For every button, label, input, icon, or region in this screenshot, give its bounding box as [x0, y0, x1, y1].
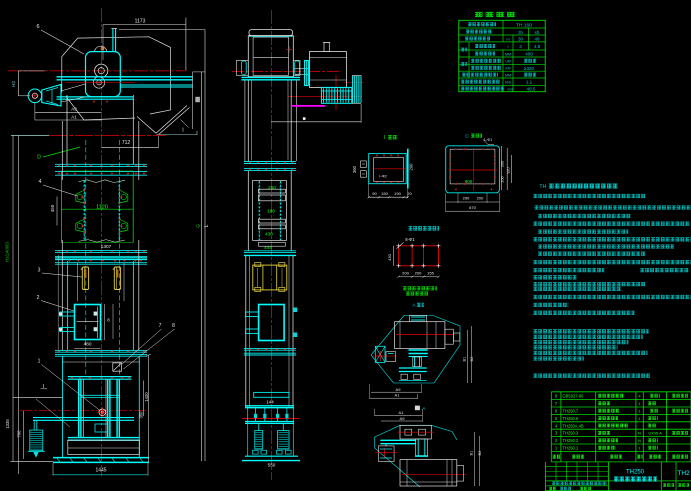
svg-text:1.1: 1.1	[526, 80, 533, 85]
svg-text:200: 200	[501, 176, 505, 182]
svg-text:90: 90	[372, 191, 377, 196]
svg-text:TH 160: TH 160	[516, 23, 532, 29]
svg-text:150: 150	[381, 191, 388, 196]
svg-text:B2: B2	[470, 357, 474, 362]
svg-text:L: L	[204, 224, 210, 227]
svg-text:360: 360	[352, 165, 357, 173]
svg-text:1307: 1307	[101, 244, 112, 250]
svg-text:180: 180	[267, 209, 275, 214]
svg-text:TH250.7: TH250.7	[563, 409, 579, 414]
svg-text:B1: B1	[463, 357, 467, 362]
svg-text:A9: A9	[396, 387, 402, 392]
svg-text:I-Φ2: I-Φ2	[379, 175, 386, 179]
svg-text:350: 350	[139, 411, 144, 419]
svg-text:400: 400	[525, 52, 533, 57]
svg-text:1173: 1173	[135, 19, 146, 25]
svg-text:UM: UM	[505, 60, 511, 64]
svg-text:1445: 1445	[95, 468, 106, 474]
svg-text:r/mi: r/mi	[507, 87, 513, 91]
svg-text:1: 1	[38, 359, 41, 365]
svg-text:6: 6	[36, 24, 39, 30]
svg-text:A: A	[413, 303, 416, 308]
svg-text:2: 2	[37, 295, 40, 301]
svg-text:550: 550	[268, 463, 276, 468]
svg-text:GX35-A: GX35-A	[648, 432, 662, 436]
svg-text:TH250.1: TH250.1	[563, 446, 579, 451]
svg-text:670: 670	[469, 205, 476, 210]
svg-text:30: 30	[518, 37, 524, 42]
svg-text:A9: A9	[71, 107, 77, 112]
svg-text:A1: A1	[399, 410, 405, 415]
svg-text:48.5: 48.5	[527, 87, 536, 92]
svg-text:200: 200	[477, 196, 484, 201]
svg-text:48: 48	[534, 37, 540, 42]
svg-text:155: 155	[427, 270, 434, 275]
svg-text:G: G	[196, 224, 201, 228]
svg-text:4.8: 4.8	[534, 44, 541, 49]
svg-text:N: N	[638, 438, 641, 443]
svg-text:144: 144	[266, 400, 274, 405]
svg-text:A1: A1	[71, 115, 77, 120]
svg-text:480: 480	[83, 342, 91, 348]
svg-text:200: 200	[402, 270, 409, 275]
svg-text:200: 200	[408, 163, 413, 171]
svg-text:≥320: ≥320	[524, 66, 534, 71]
svg-text:M/S: M/S	[505, 81, 512, 85]
svg-text:MM: MM	[505, 73, 511, 77]
svg-text:TH250.6: TH250.6	[563, 416, 579, 421]
svg-text:430: 430	[265, 232, 273, 237]
svg-text:712: 712	[122, 140, 131, 146]
svg-text:200: 200	[501, 161, 505, 167]
svg-text:B1: B1	[470, 451, 474, 456]
svg-text:1120: 1120	[96, 205, 108, 211]
svg-text:20: 20	[407, 191, 412, 196]
svg-text:GB5027-86: GB5027-86	[563, 394, 585, 399]
svg-text:TH250A.4B: TH250A.4B	[563, 423, 584, 428]
svg-text:B2: B2	[478, 451, 482, 456]
svg-text:700: 700	[17, 430, 22, 438]
svg-text:3: 3	[38, 268, 41, 274]
svg-text:290: 290	[463, 196, 470, 201]
svg-text:444: 444	[264, 245, 272, 250]
svg-text:TH250: TH250	[626, 470, 645, 476]
svg-text:sh: sh	[535, 30, 540, 35]
svg-text:I: I	[384, 135, 385, 141]
svg-text:190: 190	[394, 191, 401, 196]
svg-text:TH2: TH2	[677, 470, 690, 477]
svg-text:900: 900	[465, 179, 473, 184]
svg-text:920: 920	[506, 167, 510, 173]
svg-text:250: 250	[268, 185, 276, 190]
svg-text:8-Φ1: 8-Φ1	[405, 237, 415, 242]
svg-text:A9: A9	[400, 416, 406, 421]
svg-text:H1(14000): H1(14000)	[5, 242, 10, 262]
svg-text:200: 200	[415, 270, 422, 275]
svg-text:450: 450	[50, 204, 55, 212]
svg-text:A: A	[423, 406, 426, 411]
svg-text:MM: MM	[505, 52, 511, 56]
svg-text:I: I	[43, 384, 44, 390]
svg-text:I: I	[507, 44, 508, 49]
svg-text:1335: 1335	[5, 419, 10, 429]
svg-text:KN: KN	[506, 67, 511, 71]
svg-text:zh: zh	[518, 30, 523, 35]
svg-text:TH250.2: TH250.2	[563, 438, 579, 443]
svg-text:1400: 1400	[144, 392, 149, 402]
svg-text:4: 4	[39, 179, 42, 185]
svg-text:D: D	[37, 155, 41, 161]
svg-text:H2: H2	[11, 81, 16, 87]
svg-text:TH: TH	[539, 184, 546, 190]
svg-text:A1: A1	[395, 393, 401, 398]
svg-text:8: 8	[172, 323, 175, 329]
svg-text:TH250.3: TH250.3	[563, 431, 579, 436]
svg-text:7: 7	[159, 323, 162, 329]
svg-text:N: N	[638, 431, 641, 436]
svg-text:430: 430	[387, 253, 392, 260]
